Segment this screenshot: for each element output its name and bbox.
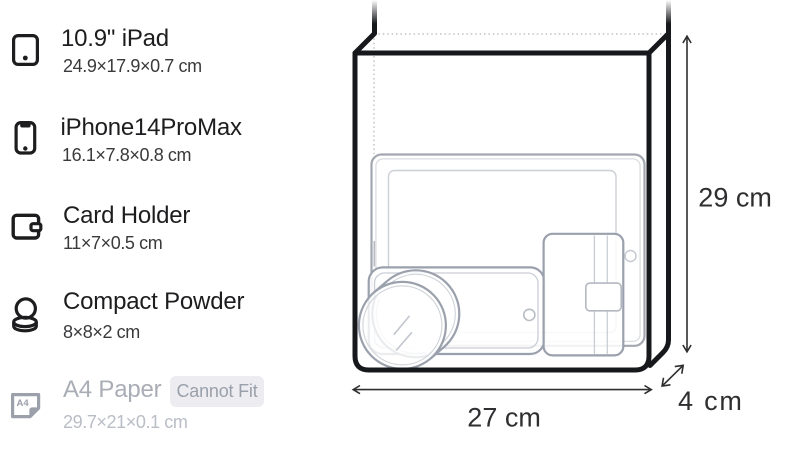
svg-text:29 cm: 29 cm (698, 183, 772, 213)
svg-text:27 cm: 27 cm (467, 403, 541, 433)
svg-text:4 cm: 4 cm (678, 386, 744, 416)
